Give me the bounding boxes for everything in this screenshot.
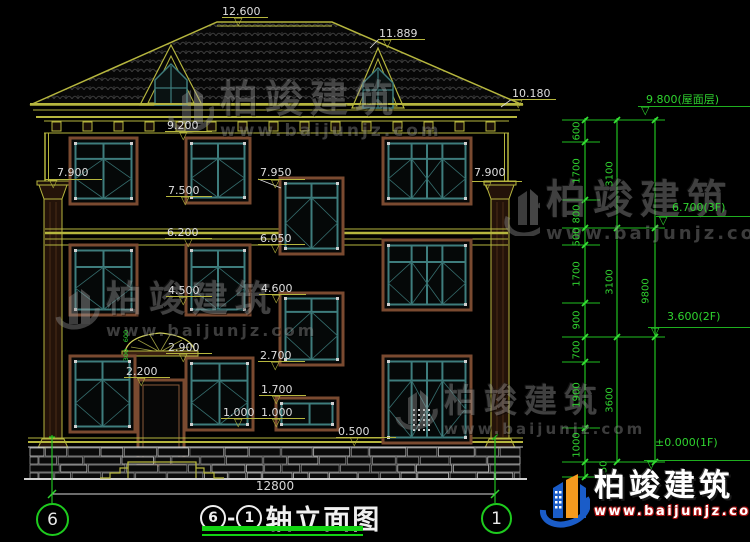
elevation-marker-triangle: ▽ xyxy=(234,16,242,27)
left-pilaster xyxy=(37,181,69,448)
floor-level-marker: 6.700(3F) xyxy=(672,201,725,214)
dim-chain-segment: 800 xyxy=(572,204,583,223)
dim-chain-segment: 900 xyxy=(572,310,583,329)
title-underline-thick xyxy=(202,526,363,531)
elevation-marker-triangle: ▽ xyxy=(49,178,57,189)
floor-level-triangle: ▽ xyxy=(641,105,649,116)
elevation-marker-triangle: ▽ xyxy=(184,237,192,248)
elevation-marker-line xyxy=(222,17,268,18)
title-text: 轴立面图 xyxy=(265,498,381,537)
elevation-marker-line xyxy=(124,377,170,378)
floor-level-line xyxy=(644,460,750,461)
dim-chain-segment: 1900 xyxy=(572,382,583,407)
dim-chain-subtotal: 3100 xyxy=(605,161,616,186)
dim-chain-segment: 600 xyxy=(572,121,583,140)
right-pilaster xyxy=(484,181,516,448)
elevation-marker-line xyxy=(166,296,212,297)
cornice-dentils xyxy=(52,122,495,131)
floor-level-marker: ±0.000(1F) xyxy=(655,436,718,449)
dim-chain-segment: 700 xyxy=(572,340,583,359)
elevation-marker-triangle: ▽ xyxy=(272,293,280,304)
elevation-marker-triangle: ▽ xyxy=(350,436,358,447)
drawing-line-art xyxy=(0,0,750,542)
elevation-drawing-canvas: 柏竣建筑 www.baijunjz.com 柏竣建筑 www.baijunjz.… xyxy=(0,0,750,542)
elevation-marker-line xyxy=(472,181,522,182)
floor-level-line xyxy=(656,216,750,217)
title-underline-thin xyxy=(202,534,363,536)
footer-url: www.baijunjz.com xyxy=(594,504,750,519)
elevation-marker-line xyxy=(259,294,306,295)
dim-chain-subtotal: 3100 xyxy=(605,269,616,294)
elevation-marker-line xyxy=(336,437,396,438)
elevation-marker-triangle: ▽ xyxy=(383,38,391,49)
elevation-marker-triangle: ▽ xyxy=(272,394,280,405)
floor-level-line xyxy=(638,106,750,107)
elevation-marker-triangle: ▽ xyxy=(179,130,187,141)
stone-base xyxy=(30,448,520,479)
drawing-title: 6 - 1 轴立面图 xyxy=(200,498,381,537)
elevation-marker-triangle: ▽ xyxy=(137,376,145,387)
axis-bubble-6: 6 xyxy=(36,503,69,536)
elevation-marker-line xyxy=(259,395,306,396)
elevation-marker: 7.900 xyxy=(474,166,506,179)
elevation-marker-triangle: ▽ xyxy=(179,295,187,306)
elevation-marker-line xyxy=(258,179,305,180)
dim-chain-segment: 500 xyxy=(572,227,583,246)
mini-dim: 600 xyxy=(122,330,130,342)
floor-level-marker: 9.800(屋面层) xyxy=(646,91,719,107)
footer-brand: 柏竣建筑 xyxy=(594,470,750,503)
roof xyxy=(30,22,523,105)
dim-chain-segment: 1000 xyxy=(572,432,583,457)
floor-level-marker: 3.600(2F) xyxy=(667,310,720,323)
footer-logo-icon xyxy=(536,470,590,530)
mini-dim: 300 xyxy=(122,349,130,361)
floor-level-triangle: ▽ xyxy=(659,215,667,226)
elevation-marker-triangle: ▽ xyxy=(271,243,279,254)
elevation-marker-triangle: ▽ xyxy=(271,360,279,371)
elevation-marker-line xyxy=(166,353,212,354)
elevation-marker-triangle: ▽ xyxy=(181,195,189,206)
elevation-marker-triangle: ▽ xyxy=(179,352,187,363)
dim-chain-subtotal: 3600 xyxy=(605,387,616,412)
elevation-marker-triangle: ▽ xyxy=(234,417,242,428)
elevation-marker-triangle: ▽ xyxy=(483,180,491,191)
floor-level-line xyxy=(648,327,750,328)
overall-width-dimension: 12800 xyxy=(240,479,310,493)
axis-bubble-1: 1 xyxy=(481,503,512,534)
elevation-marker-line xyxy=(259,418,305,419)
elevation-marker-line xyxy=(258,361,305,362)
elevation-marker-line xyxy=(165,131,212,132)
elevation-marker-triangle: ▽ xyxy=(272,417,280,428)
elevation-marker-triangle: ▽ xyxy=(271,178,279,189)
dim-chain-total: 9800 xyxy=(641,278,652,303)
elevation-marker: 7.900 xyxy=(57,166,89,179)
floor-level-triangle: ▽ xyxy=(651,326,659,337)
dim-chain-segment: 1700 xyxy=(572,158,583,183)
elevation-marker-triangle: ▽ xyxy=(514,98,522,109)
dim-chain-segment: 1700 xyxy=(572,261,583,286)
footer-logo: 柏竣建筑 www.baijunjz.com xyxy=(536,470,750,530)
elevation-marker-line xyxy=(258,244,305,245)
